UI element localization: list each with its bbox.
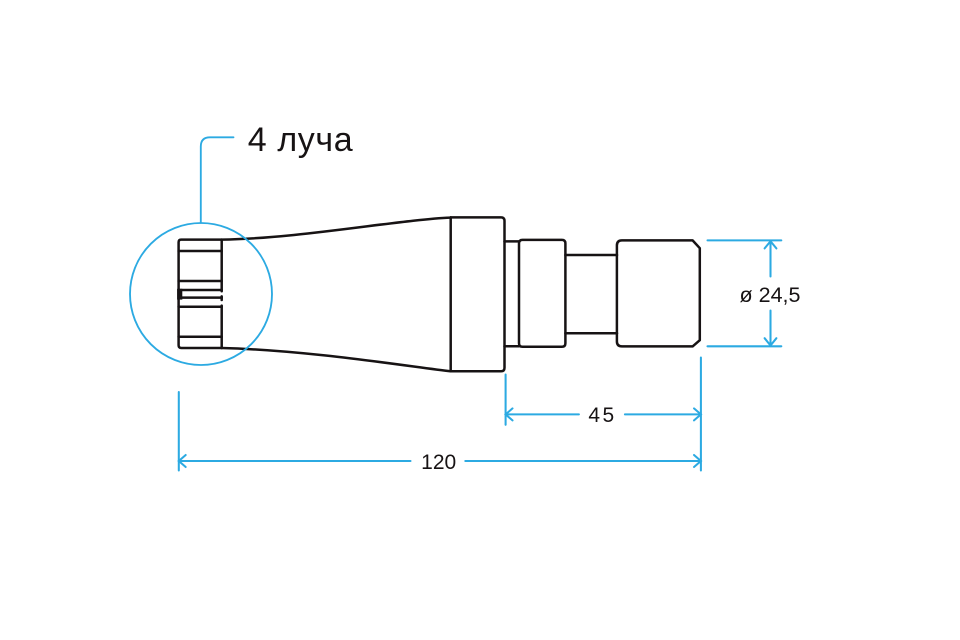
svg-text:4 луча: 4 луча <box>248 121 353 159</box>
svg-text:45: 45 <box>588 404 616 427</box>
svg-text:ø 24,5: ø 24,5 <box>740 283 801 307</box>
svg-text:120: 120 <box>421 451 456 474</box>
